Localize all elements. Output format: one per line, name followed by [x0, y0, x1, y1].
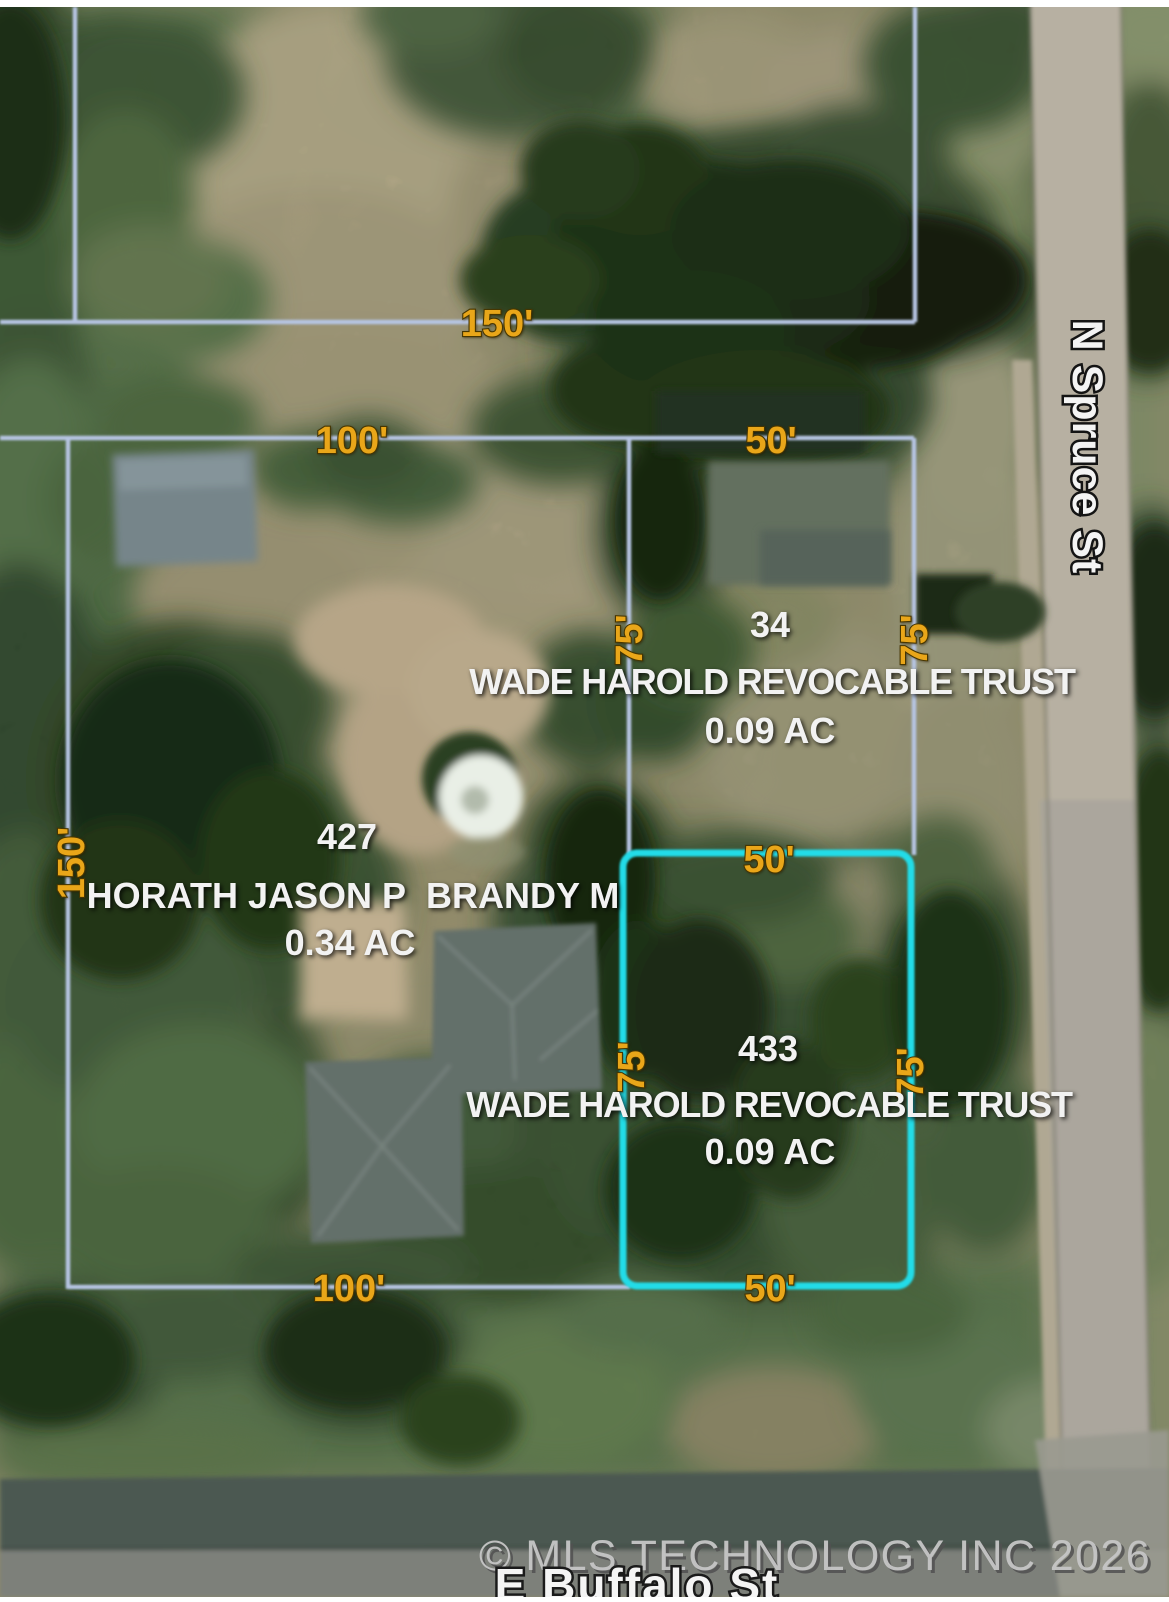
svg-text:150': 150': [461, 303, 533, 345]
svg-text:N Spruce St: N Spruce St: [1063, 320, 1111, 575]
svg-text:100': 100': [316, 420, 388, 462]
svg-text:100': 100': [313, 1268, 385, 1310]
svg-text:WADE HAROLD REVOCABLE TRUST: WADE HAROLD REVOCABLE TRUST: [466, 1084, 1073, 1125]
svg-text:0.34 AC: 0.34 AC: [285, 922, 416, 963]
svg-text:50': 50': [744, 1268, 795, 1310]
svg-text:427: 427: [317, 816, 377, 857]
svg-text:0.09 AC: 0.09 AC: [705, 710, 836, 751]
svg-text:E Buffalo St: E Buffalo St: [495, 1559, 780, 1602]
svg-text:75': 75': [609, 614, 651, 665]
svg-text:50': 50': [743, 839, 794, 881]
svg-text:50': 50': [745, 420, 796, 462]
svg-text:0.09 AC: 0.09 AC: [705, 1131, 836, 1172]
svg-text:34: 34: [750, 604, 790, 645]
svg-text:HORATH JASON P BRANDY M: HORATH JASON P BRANDY M: [87, 875, 620, 916]
svg-text:433: 433: [738, 1028, 798, 1069]
svg-text:75': 75': [894, 614, 936, 665]
svg-text:WADE HAROLD REVOCABLE TRUST: WADE HAROLD REVOCABLE TRUST: [469, 661, 1076, 702]
